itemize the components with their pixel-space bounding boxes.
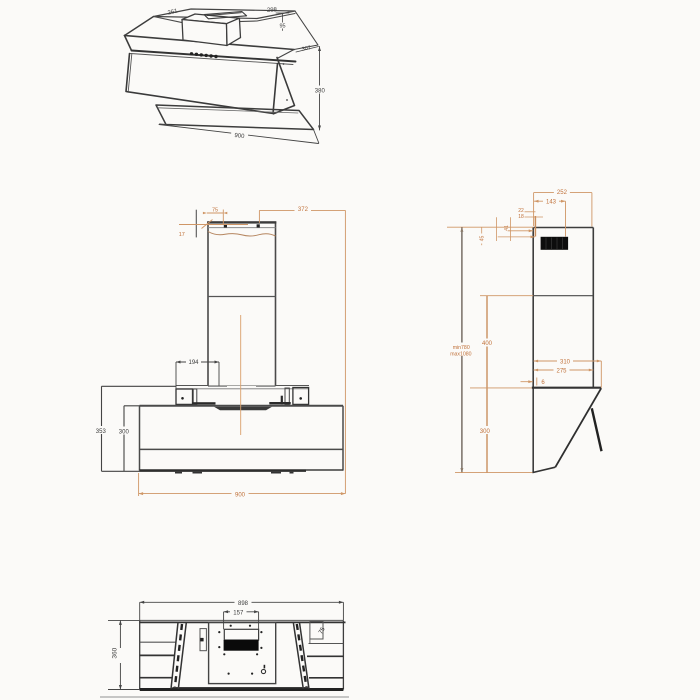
svg-text:143: 143 (546, 200, 557, 206)
svg-text:400: 400 (482, 341, 493, 347)
svg-text:41: 41 (504, 225, 510, 231)
svg-text:310: 310 (560, 360, 571, 366)
svg-text:18: 18 (518, 214, 524, 220)
svg-text:max1080: max1080 (450, 352, 471, 358)
svg-text:252: 252 (557, 190, 568, 196)
svg-text:194: 194 (188, 360, 199, 366)
svg-text:275: 275 (556, 369, 567, 375)
svg-text:300: 300 (480, 429, 491, 435)
svg-text:95: 95 (279, 24, 285, 30)
svg-text:380: 380 (315, 88, 326, 94)
svg-text:157: 157 (233, 610, 244, 616)
svg-text:min780: min780 (453, 345, 470, 351)
svg-text:900: 900 (235, 492, 246, 498)
svg-text:300: 300 (119, 429, 130, 435)
svg-text:17: 17 (179, 232, 185, 238)
svg-text:360: 360 (111, 647, 118, 658)
svg-text:372: 372 (298, 207, 309, 213)
svg-text:353: 353 (96, 429, 107, 435)
svg-text:45: 45 (480, 236, 486, 242)
svg-text:75: 75 (212, 208, 218, 214)
svg-text:898: 898 (238, 601, 249, 607)
